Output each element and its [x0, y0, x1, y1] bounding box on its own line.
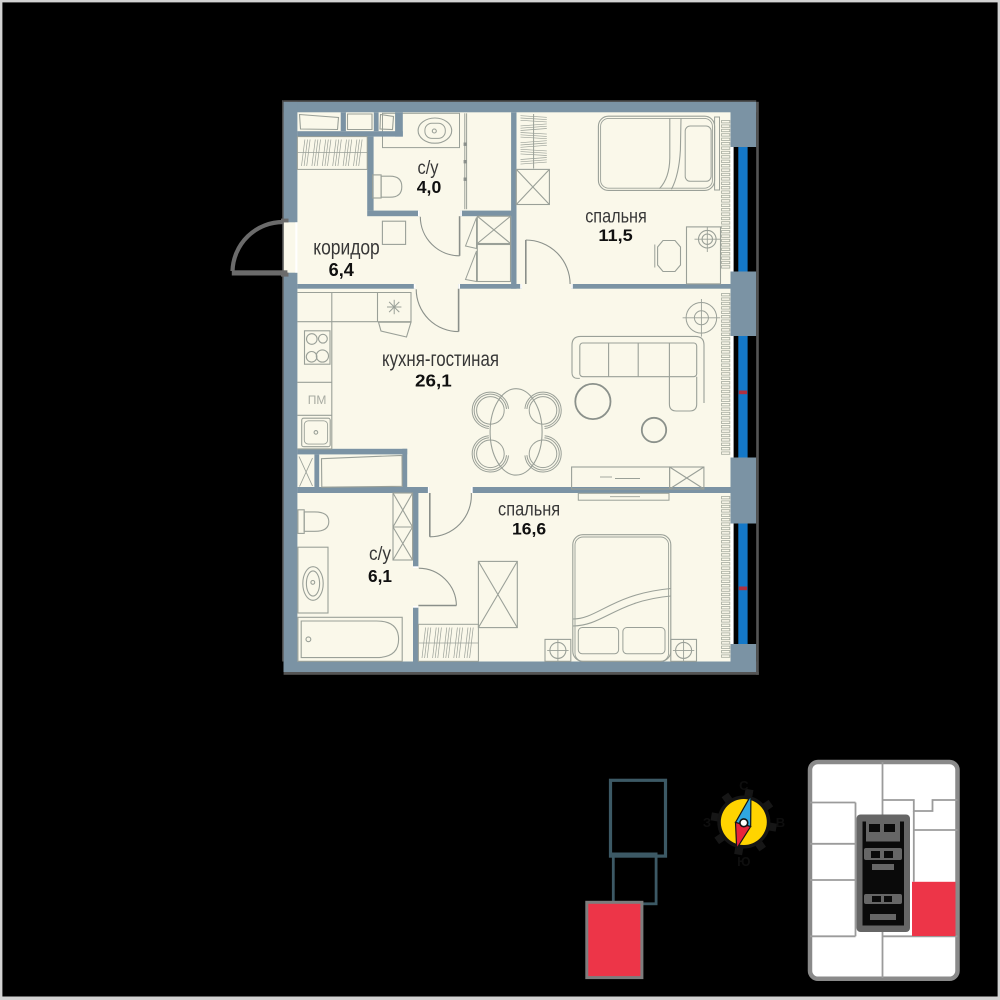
svg-text:спальня: спальня	[498, 499, 560, 520]
svg-text:6,4: 6,4	[329, 260, 354, 280]
svg-text:11,5: 11,5	[598, 226, 632, 245]
svg-text:16,6: 16,6	[512, 520, 546, 539]
svg-text:спальня: спальня	[585, 206, 647, 227]
svg-text:с/у: с/у	[418, 158, 439, 179]
svg-text:З: З	[703, 815, 711, 830]
svg-text:коридор: коридор	[313, 237, 380, 260]
svg-text:Ю: Ю	[737, 854, 750, 869]
svg-text:26,1: 26,1	[415, 371, 452, 391]
svg-text:ПМ: ПМ	[308, 393, 327, 407]
svg-text:В: В	[776, 815, 785, 830]
svg-text:4,0: 4,0	[417, 177, 442, 197]
svg-text:кухня-гостиная: кухня-гостиная	[382, 347, 499, 371]
svg-text:С: С	[739, 778, 749, 793]
svg-text:с/у: с/у	[369, 544, 391, 565]
svg-text:6,1: 6,1	[368, 566, 392, 586]
